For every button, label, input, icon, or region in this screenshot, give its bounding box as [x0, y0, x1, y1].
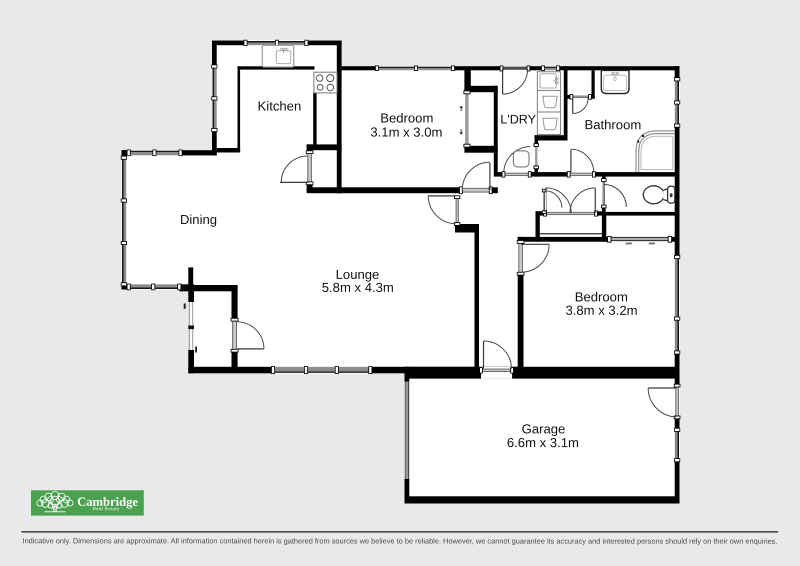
svg-text:5.8m x 4.3m: 5.8m x 4.3m — [322, 280, 394, 295]
svg-text:L'DRY: L'DRY — [500, 112, 536, 126]
svg-text:6.6m x 3.1m: 6.6m x 3.1m — [507, 435, 579, 450]
svg-text:3.1m x 3.0m: 3.1m x 3.0m — [370, 125, 442, 140]
svg-text:3.8m x 3.2m: 3.8m x 3.2m — [565, 303, 637, 318]
svg-text:Dining: Dining — [180, 212, 217, 227]
svg-text:Indicative only. Dimensions ar: Indicative only. Dimensions are approxim… — [23, 536, 778, 545]
svg-text:Real Estate: Real Estate — [93, 506, 120, 511]
svg-text:Bathroom: Bathroom — [585, 117, 642, 132]
svg-text:Kitchen: Kitchen — [258, 98, 302, 113]
svg-text:Bedroom: Bedroom — [380, 110, 433, 125]
